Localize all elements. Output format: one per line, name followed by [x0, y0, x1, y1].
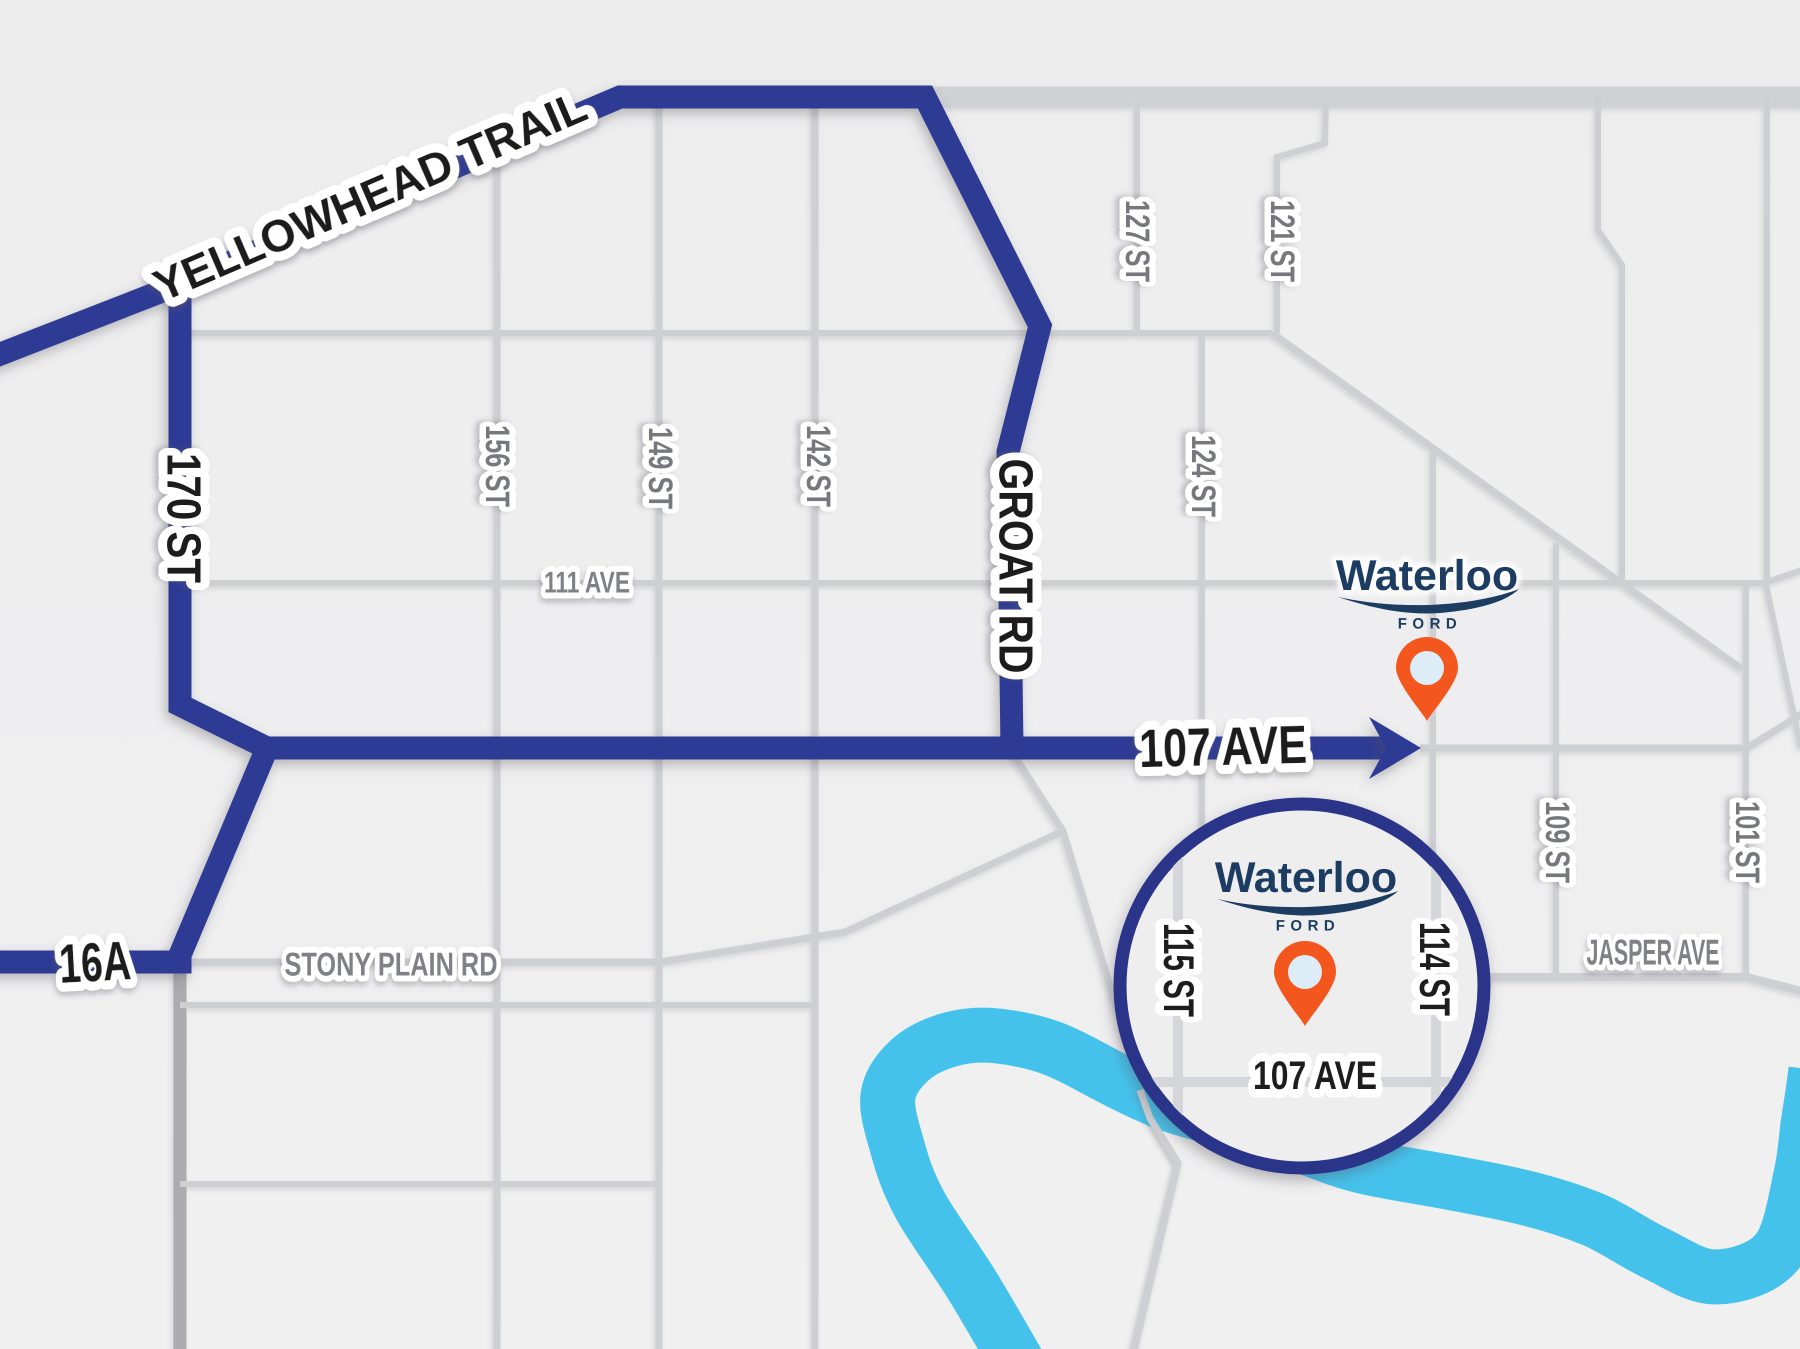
svg-text:111 AVE: 111 AVE [544, 567, 630, 600]
svg-text:170 ST: 170 ST [157, 453, 210, 583]
svg-text:156 ST: 156 ST [478, 425, 516, 507]
svg-text:107 AVE: 107 AVE [1253, 1054, 1377, 1098]
svg-text:115 ST: 115 ST [1154, 923, 1202, 1017]
svg-text:114 ST: 114 ST [1410, 922, 1458, 1016]
svg-text:STONY PLAIN RD: STONY PLAIN RD [285, 946, 498, 983]
svg-text:124 ST: 124 ST [1184, 435, 1222, 517]
svg-text:Waterloo: Waterloo [1336, 552, 1518, 600]
svg-text:127 ST: 127 ST [1118, 200, 1156, 282]
svg-text:101 ST: 101 ST [1728, 801, 1766, 883]
svg-text:109 ST: 109 ST [1538, 801, 1576, 883]
svg-text:142 ST: 142 ST [799, 425, 837, 507]
svg-text:JASPER AVE: JASPER AVE [1587, 932, 1720, 973]
svg-text:FORD: FORD [1398, 616, 1463, 633]
svg-text:107 AVE: 107 AVE [1138, 715, 1308, 779]
svg-text:FORD: FORD [1276, 918, 1341, 935]
svg-text:GROAT RD: GROAT RD [989, 459, 1042, 674]
svg-text:16A: 16A [57, 929, 132, 995]
svg-text:Waterloo: Waterloo [1215, 854, 1397, 902]
svg-text:121 ST: 121 ST [1263, 200, 1301, 282]
svg-text:149 ST: 149 ST [641, 427, 679, 509]
